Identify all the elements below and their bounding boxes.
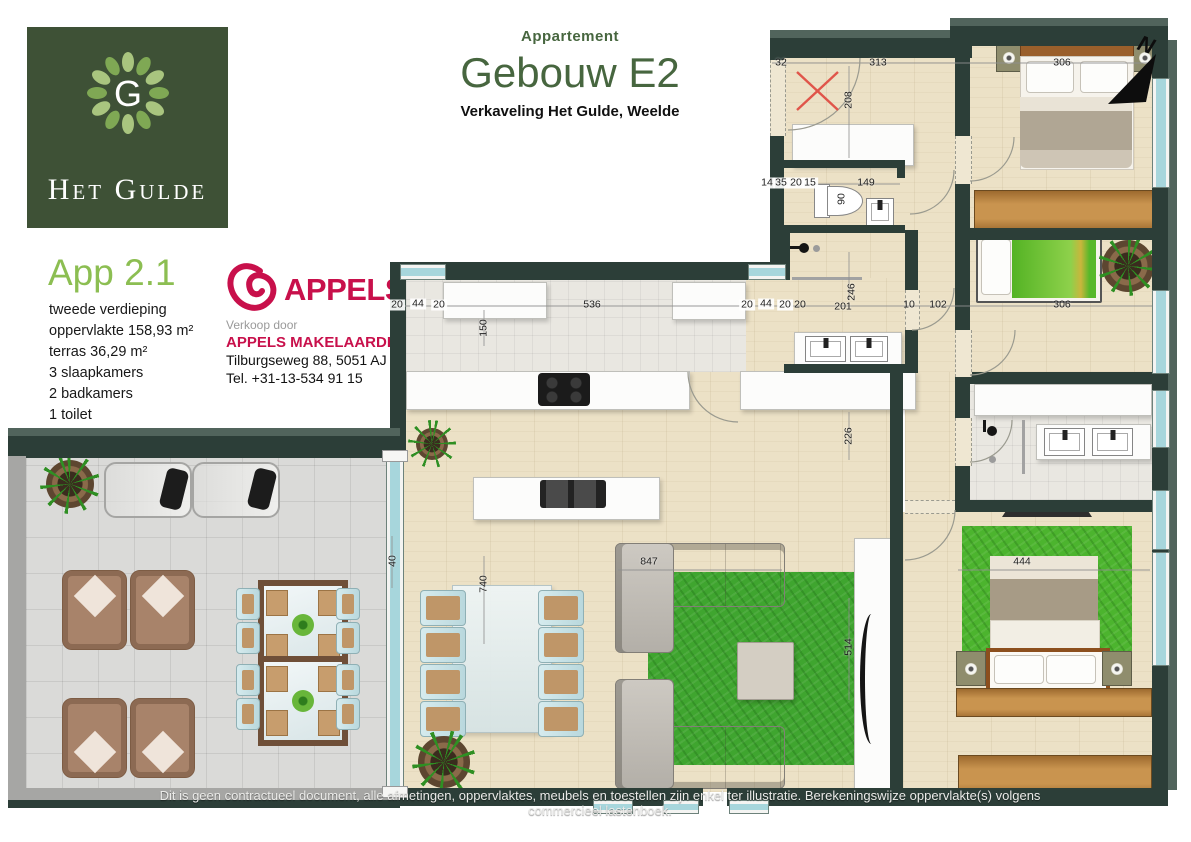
dim-label: 44 (758, 299, 774, 310)
dim-label: 201 (834, 302, 852, 313)
dim-label: 90 (837, 193, 848, 205)
dim-label: 20 (389, 300, 405, 311)
dim-label: 313 (869, 58, 887, 69)
dim-label: 150 (479, 319, 490, 337)
dim-label: 20 (739, 300, 755, 311)
entrance-x-mark (797, 72, 838, 110)
dim-label: 208 (844, 91, 855, 109)
dim-label: 40 (388, 555, 399, 567)
dim-label: 15 (802, 178, 818, 189)
dim-label: 32 (775, 58, 787, 69)
dim-label: 20 (794, 300, 806, 311)
dim-label: 306 (1053, 58, 1071, 69)
dim-label: 740 (479, 575, 490, 593)
brochure-page: G Het Gulde Appartement Gebouw E2 Verkav… (0, 0, 1191, 842)
dim-label: 226 (844, 427, 855, 445)
dim-label: 44 (410, 299, 426, 310)
north-arrow-icon: N (1100, 26, 1164, 110)
dimension-lines (392, 63, 1152, 700)
dim-label: 35 (773, 178, 789, 189)
dim-label: 514 (844, 638, 855, 656)
dim-label: 102 (929, 300, 947, 311)
dim-label: 20 (777, 300, 793, 311)
dim-label: 444 (1013, 557, 1031, 568)
plan-line-overlay (0, 0, 1191, 842)
floorplan: 32 313 208 14 35 20 15 149 90 306 20 44 … (0, 0, 1191, 842)
dim-label: 246 (847, 283, 858, 301)
dim-label: 149 (857, 178, 875, 189)
dim-label: 20 (431, 300, 447, 311)
dim-label: 306 (1053, 300, 1071, 311)
dim-label: 10 (903, 300, 915, 311)
dim-label: 536 (583, 300, 601, 311)
dim-label: 847 (640, 557, 658, 568)
disclaimer-text: Dit is geen contractueel document, alle … (150, 788, 1050, 818)
